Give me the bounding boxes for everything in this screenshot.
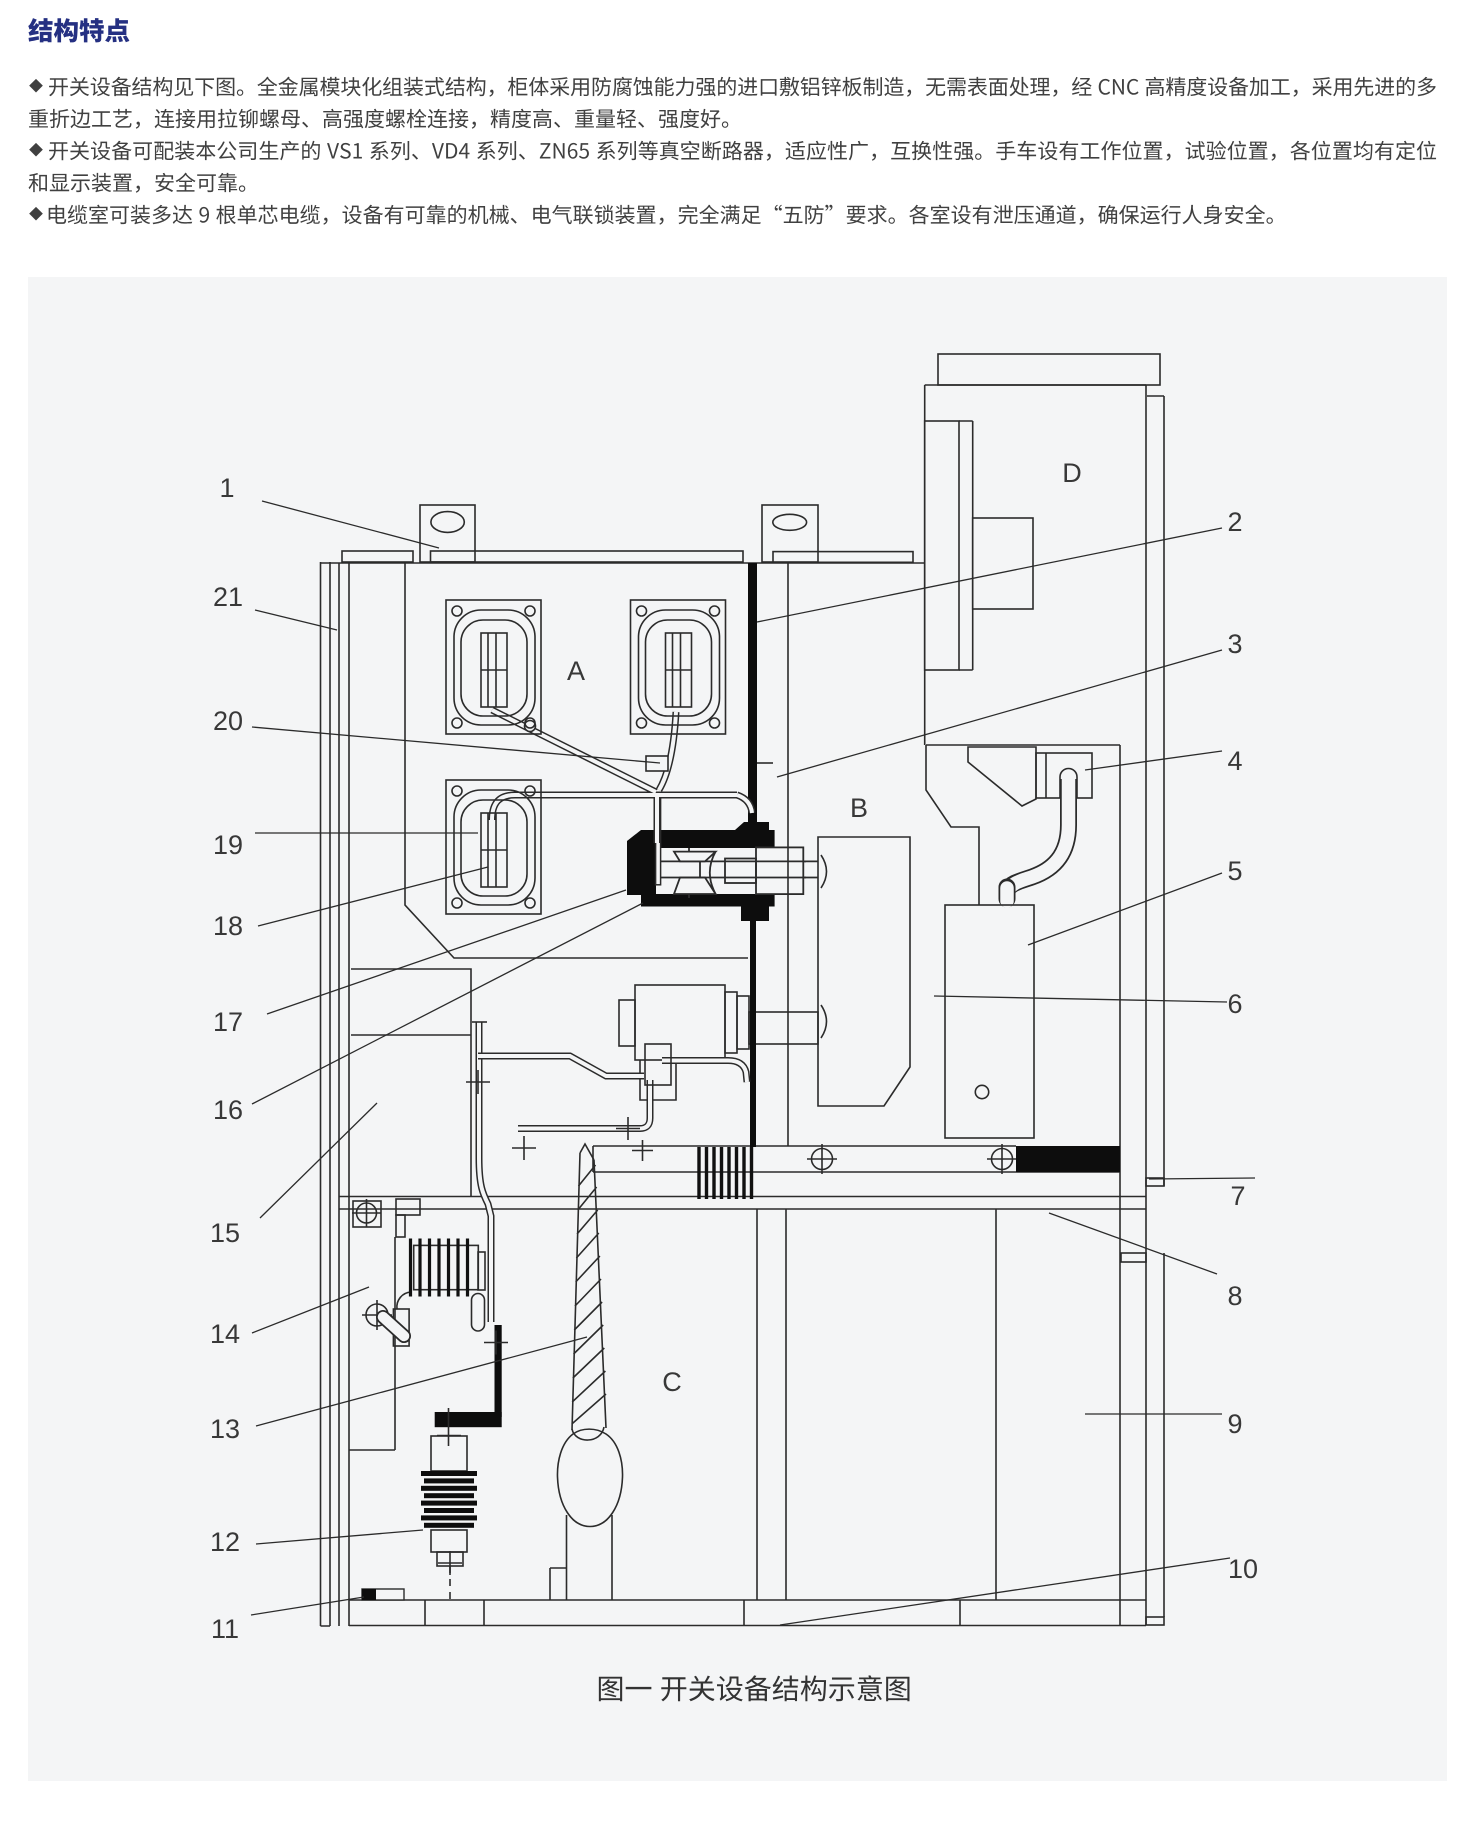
svg-text:21: 21 <box>213 582 243 612</box>
svg-text:16: 16 <box>213 1095 243 1125</box>
svg-text:7: 7 <box>1230 1181 1245 1211</box>
svg-text:D: D <box>1062 458 1082 488</box>
svg-text:15: 15 <box>210 1218 240 1248</box>
svg-text:5: 5 <box>1227 856 1242 886</box>
svg-text:B: B <box>850 793 868 823</box>
svg-text:12: 12 <box>210 1527 240 1557</box>
svg-text:18: 18 <box>213 911 243 941</box>
svg-text:4: 4 <box>1227 746 1242 776</box>
svg-text:9: 9 <box>1227 1409 1242 1439</box>
svg-text:1: 1 <box>219 473 234 503</box>
svg-text:8: 8 <box>1227 1281 1242 1311</box>
svg-text:11: 11 <box>211 1614 239 1644</box>
svg-text:C: C <box>662 1367 682 1397</box>
svg-text:13: 13 <box>210 1414 240 1444</box>
svg-text:2: 2 <box>1227 507 1242 537</box>
svg-text:19: 19 <box>213 830 243 860</box>
svg-text:3: 3 <box>1227 629 1242 659</box>
svg-text:A: A <box>567 656 585 686</box>
svg-text:20: 20 <box>213 706 243 736</box>
svg-text:10: 10 <box>1228 1554 1258 1584</box>
svg-text:6: 6 <box>1227 989 1242 1019</box>
svg-text:14: 14 <box>210 1319 240 1349</box>
svg-text:17: 17 <box>213 1007 243 1037</box>
